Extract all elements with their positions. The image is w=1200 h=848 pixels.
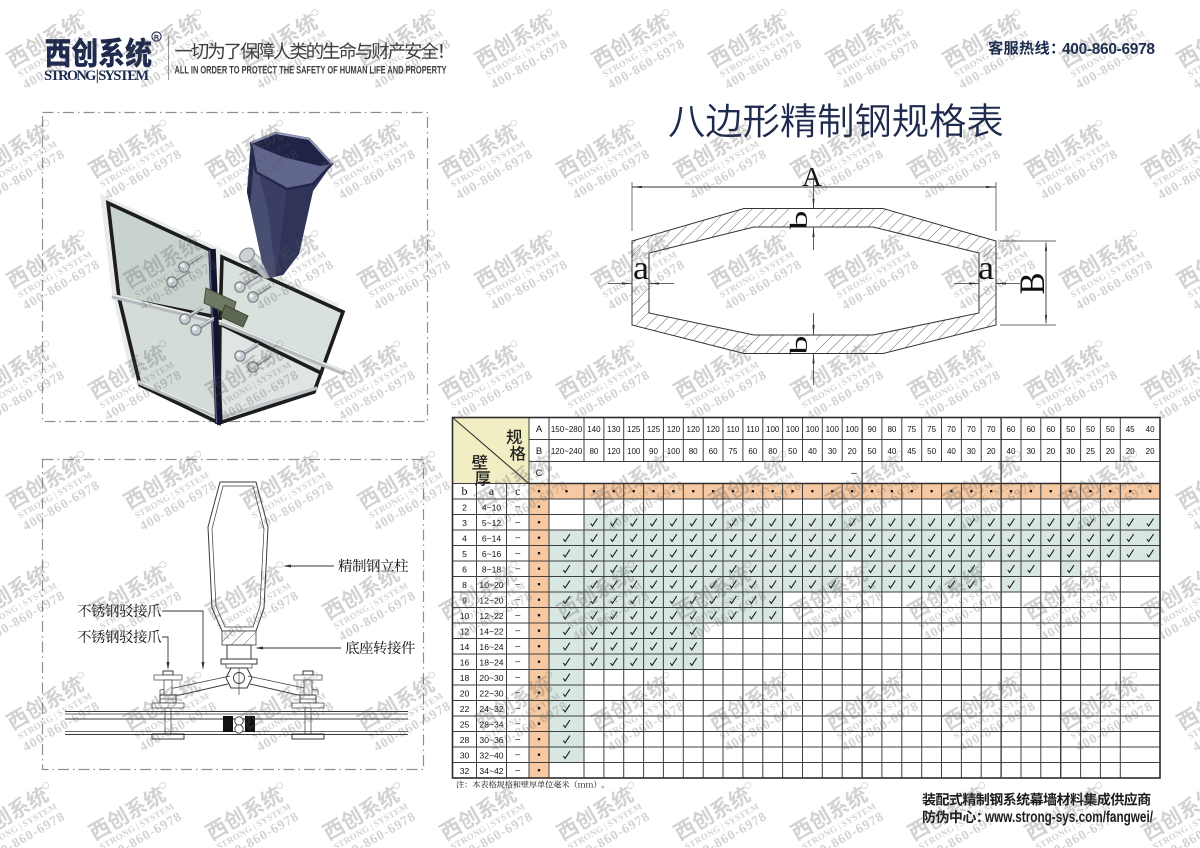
svg-text:100: 100 [826, 425, 840, 434]
svg-text:125: 125 [627, 425, 641, 434]
svg-text:6~16: 6~16 [482, 549, 502, 559]
svg-text:50: 50 [788, 447, 797, 456]
svg-text:110: 110 [746, 425, 759, 434]
svg-text:20: 20 [460, 688, 470, 698]
svg-text:40: 40 [947, 447, 956, 456]
svg-text:30: 30 [967, 447, 976, 456]
svg-text:60: 60 [748, 447, 757, 456]
svg-text:20: 20 [1046, 447, 1055, 456]
svg-text:150~280: 150~280 [551, 425, 583, 434]
svg-text:40: 40 [1007, 447, 1016, 456]
svg-text:b: b [787, 336, 813, 355]
svg-text:20: 20 [1146, 447, 1155, 456]
svg-text:20~30: 20~30 [479, 673, 503, 683]
svg-text:30: 30 [1066, 447, 1075, 456]
svg-text:120: 120 [607, 447, 621, 456]
svg-text:125: 125 [647, 425, 661, 434]
svg-text:50: 50 [1066, 425, 1075, 434]
svg-text:A: A [536, 424, 543, 435]
svg-text:45: 45 [1126, 425, 1135, 434]
svg-text:34~42: 34~42 [479, 766, 503, 776]
svg-text:50: 50 [1106, 425, 1115, 434]
svg-text:100: 100 [627, 447, 641, 456]
svg-text:60: 60 [1007, 425, 1016, 434]
svg-text:20: 20 [987, 447, 996, 456]
svg-text:50: 50 [1086, 425, 1095, 434]
svg-text:40: 40 [808, 447, 817, 456]
svg-text:100: 100 [845, 425, 859, 434]
svg-text:4: 4 [462, 533, 467, 543]
svg-text:75: 75 [927, 425, 936, 434]
svg-text:22: 22 [460, 704, 470, 714]
svg-text:8~18: 8~18 [482, 564, 502, 574]
svg-text:–: – [515, 765, 520, 775]
svg-text:22~30: 22~30 [479, 688, 503, 698]
svg-text:–: – [515, 656, 520, 666]
svg-text:–: – [515, 532, 520, 542]
svg-text:120: 120 [706, 425, 720, 434]
svg-text:50: 50 [868, 447, 877, 456]
svg-text:120: 120 [687, 425, 701, 434]
svg-text:–: – [515, 749, 520, 759]
svg-text:120: 120 [667, 425, 681, 434]
svg-text:18~24: 18~24 [479, 657, 503, 667]
svg-text:90: 90 [649, 447, 658, 456]
svg-text:b: b [462, 484, 468, 498]
svg-text:30: 30 [828, 447, 837, 456]
svg-text:40: 40 [887, 447, 896, 456]
svg-text:32~40: 32~40 [479, 750, 503, 760]
svg-text:60: 60 [1046, 425, 1055, 434]
svg-text:70: 70 [947, 425, 956, 434]
svg-text:110: 110 [727, 425, 740, 434]
svg-text:16~24: 16~24 [479, 642, 503, 652]
svg-text:8: 8 [462, 580, 467, 590]
svg-text:25: 25 [1086, 447, 1095, 456]
svg-text:60: 60 [709, 447, 718, 456]
svg-text:2: 2 [462, 502, 467, 512]
svg-text:70: 70 [967, 425, 976, 434]
svg-text:6: 6 [462, 564, 467, 574]
svg-text:120~240: 120~240 [551, 447, 583, 456]
svg-text:80: 80 [887, 425, 896, 434]
svg-text:6~14: 6~14 [482, 533, 502, 543]
svg-text:100: 100 [766, 425, 780, 434]
svg-text:130: 130 [607, 425, 621, 434]
svg-text:80: 80 [768, 447, 777, 456]
svg-text:75: 75 [729, 447, 738, 456]
svg-text:25: 25 [460, 719, 470, 729]
svg-text:–: – [851, 468, 857, 479]
svg-text:18: 18 [460, 673, 470, 683]
svg-text:–: – [515, 625, 520, 635]
svg-text:b: b [787, 211, 813, 230]
svg-text:B: B [536, 446, 542, 457]
svg-text:28: 28 [460, 735, 470, 745]
svg-text:–: – [515, 641, 520, 651]
svg-text:80: 80 [589, 447, 598, 456]
svg-text:3: 3 [462, 518, 467, 528]
svg-text:–: – [515, 548, 520, 558]
svg-text:20: 20 [848, 447, 857, 456]
svg-text:20: 20 [1106, 447, 1115, 456]
svg-text:32: 32 [460, 766, 470, 776]
svg-text:–: – [515, 672, 520, 682]
svg-text:80: 80 [689, 447, 698, 456]
svg-text:5: 5 [462, 549, 467, 559]
svg-text:100: 100 [786, 425, 800, 434]
svg-text:90: 90 [868, 425, 877, 434]
svg-text:100: 100 [806, 425, 820, 434]
svg-text:45: 45 [907, 447, 916, 456]
svg-text:75: 75 [907, 425, 916, 434]
svg-text:140: 140 [587, 425, 601, 434]
svg-text:16: 16 [460, 657, 470, 667]
svg-text:40: 40 [1146, 425, 1155, 434]
svg-text:50: 50 [927, 447, 936, 456]
svg-text:60: 60 [1026, 425, 1035, 434]
svg-text:70: 70 [987, 425, 996, 434]
svg-text:–: – [515, 563, 520, 573]
svg-text:30: 30 [1026, 447, 1035, 456]
svg-text:30: 30 [460, 750, 470, 760]
